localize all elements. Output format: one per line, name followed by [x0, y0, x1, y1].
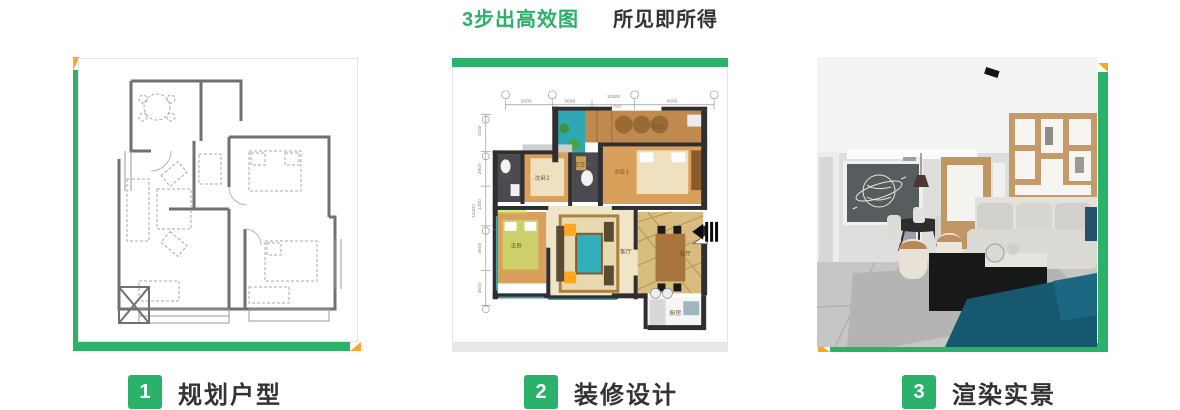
room-label-bedroom1: 次卧1 [614, 168, 630, 176]
render-photo [817, 57, 1097, 347]
color-floorplan-drawing: 2000 3600 11800 1700 4500 1500 2900 1300… [453, 67, 727, 341]
living-room-render [817, 57, 1097, 347]
svg-text:1300: 1300 [477, 199, 483, 210]
svg-text:12400: 12400 [471, 204, 477, 218]
cad-furniture [127, 94, 317, 303]
room-label-bedroom2: 次卧2 [534, 174, 549, 182]
step2-number-badge: 2 [524, 375, 558, 409]
svg-text:3600: 3600 [477, 242, 483, 253]
cad-elevator [119, 287, 149, 323]
svg-text:2000: 2000 [521, 99, 532, 105]
step3-row: 3 渲染实景 [902, 375, 1056, 409]
green-top-bar [452, 58, 728, 67]
step3-label: 渲染实景 [952, 375, 1056, 410]
step1-label: 规划户型 [178, 375, 282, 410]
step2-row: 2 装修设计 [524, 375, 678, 409]
svg-text:2900: 2900 [477, 163, 483, 174]
card-step2-color-plan[interactable]: 2000 3600 11800 1700 4500 1500 2900 1300… [452, 58, 728, 352]
color-plan-card: 2000 3600 11800 1700 4500 1500 2900 1300… [452, 67, 728, 343]
chalkboard [847, 164, 919, 222]
svg-text:3600: 3600 [564, 99, 575, 105]
svg-text:11800: 11800 [607, 94, 621, 100]
svg-text:4500: 4500 [666, 99, 677, 105]
card-step3-render-photo[interactable] [817, 57, 1108, 352]
step1-row: 1 规划户型 [128, 375, 282, 409]
orange-corner-accent [350, 342, 361, 351]
section-title-rest: 所见即所得 [613, 9, 718, 31]
room-label-balcony: 阳台 [652, 123, 664, 131]
section-title-highlight: 3步出高效图 [462, 9, 579, 31]
section-title: 3步出高效图所见即所得 [0, 3, 1180, 32]
room-label-living: 客厅 [620, 248, 632, 256]
room-label-bath1: 卫生间 [499, 172, 517, 180]
card-step1-cad-plan[interactable] [73, 57, 361, 351]
cad-floorplan-drawing [79, 59, 357, 341]
navy-cushion [1085, 207, 1097, 241]
room-label-bath2: 卫生间 [574, 160, 592, 168]
svg-text:1500: 1500 [477, 125, 483, 136]
teal-bench-highlight [1053, 273, 1097, 321]
step3-number-badge: 3 [902, 375, 936, 409]
card2-bottom-strip [452, 343, 728, 352]
room-label-dining: 餐厅 [679, 250, 691, 258]
green-frame-bottom [80, 342, 350, 351]
orange-corner-accent [1098, 63, 1108, 72]
room-label-kitchen: 厨房 [669, 309, 681, 317]
svg-text:3500: 3500 [477, 282, 483, 293]
green-frame-right [1098, 72, 1108, 352]
cad-windows [125, 151, 341, 323]
room-label-master: 主卧 [511, 242, 523, 250]
cad-walls [119, 81, 335, 309]
step1-number-badge: 1 [128, 375, 162, 409]
step2-label: 装修设计 [574, 375, 678, 410]
cad-plan-card [78, 58, 358, 342]
